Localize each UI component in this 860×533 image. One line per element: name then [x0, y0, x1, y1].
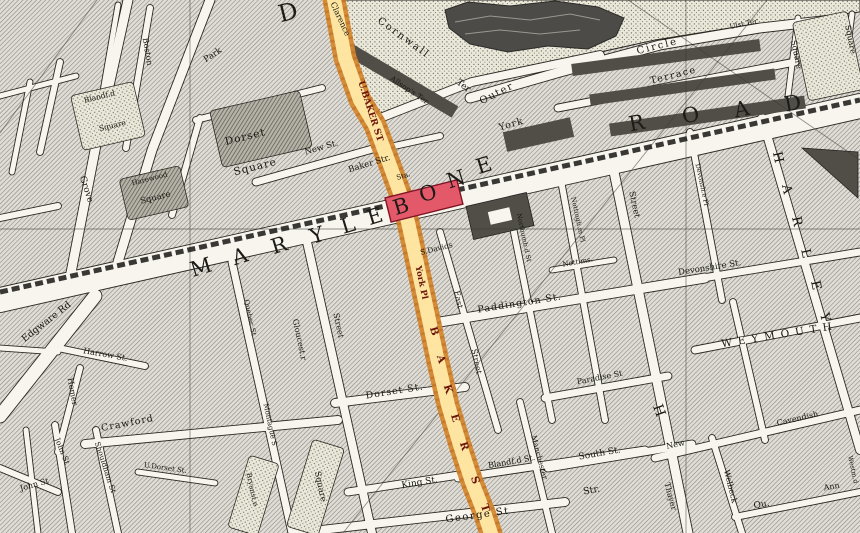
- park-lake: [445, 1, 624, 52]
- street-map-canvas[interactable]: CornwallTerAllsop's TerClarenceOuterCirc…: [0, 0, 860, 533]
- map-root: CornwallTerAllsop's TerClarenceOuterCirc…: [0, 0, 860, 533]
